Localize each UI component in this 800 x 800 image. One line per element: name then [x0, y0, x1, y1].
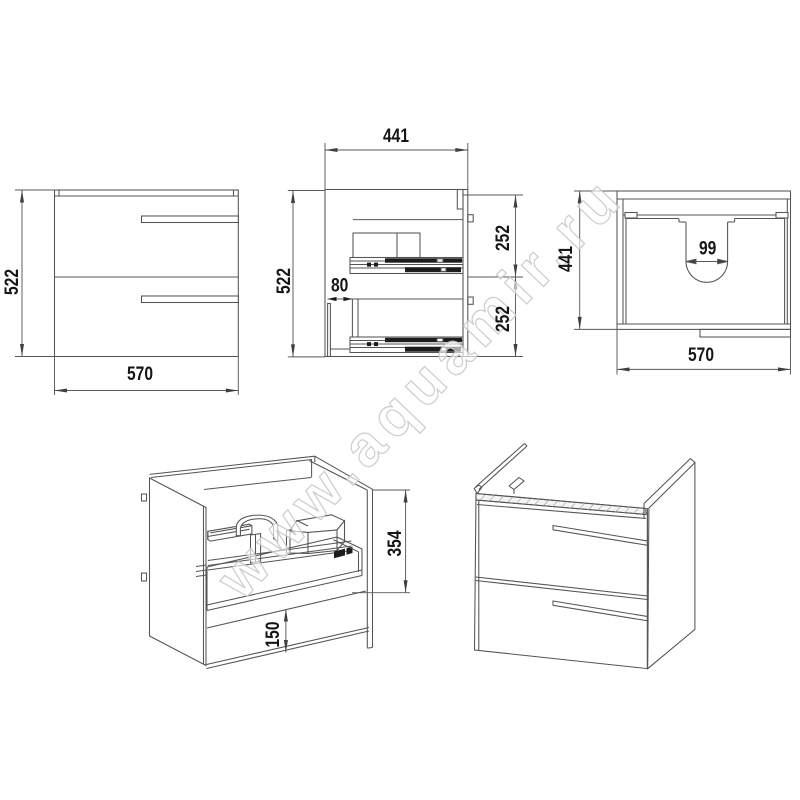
svg-text:99: 99	[699, 237, 717, 259]
svg-text:441: 441	[383, 125, 409, 147]
svg-text:150: 150	[262, 622, 284, 648]
svg-text:252: 252	[492, 306, 514, 332]
svg-text:441: 441	[555, 246, 577, 272]
svg-text:522: 522	[273, 268, 295, 294]
svg-text:570: 570	[127, 363, 153, 385]
svg-text:354: 354	[384, 530, 406, 556]
svg-text:80: 80	[331, 274, 348, 296]
svg-text:252: 252	[492, 225, 514, 251]
svg-text:522: 522	[1, 269, 23, 295]
svg-text:570: 570	[688, 344, 714, 366]
